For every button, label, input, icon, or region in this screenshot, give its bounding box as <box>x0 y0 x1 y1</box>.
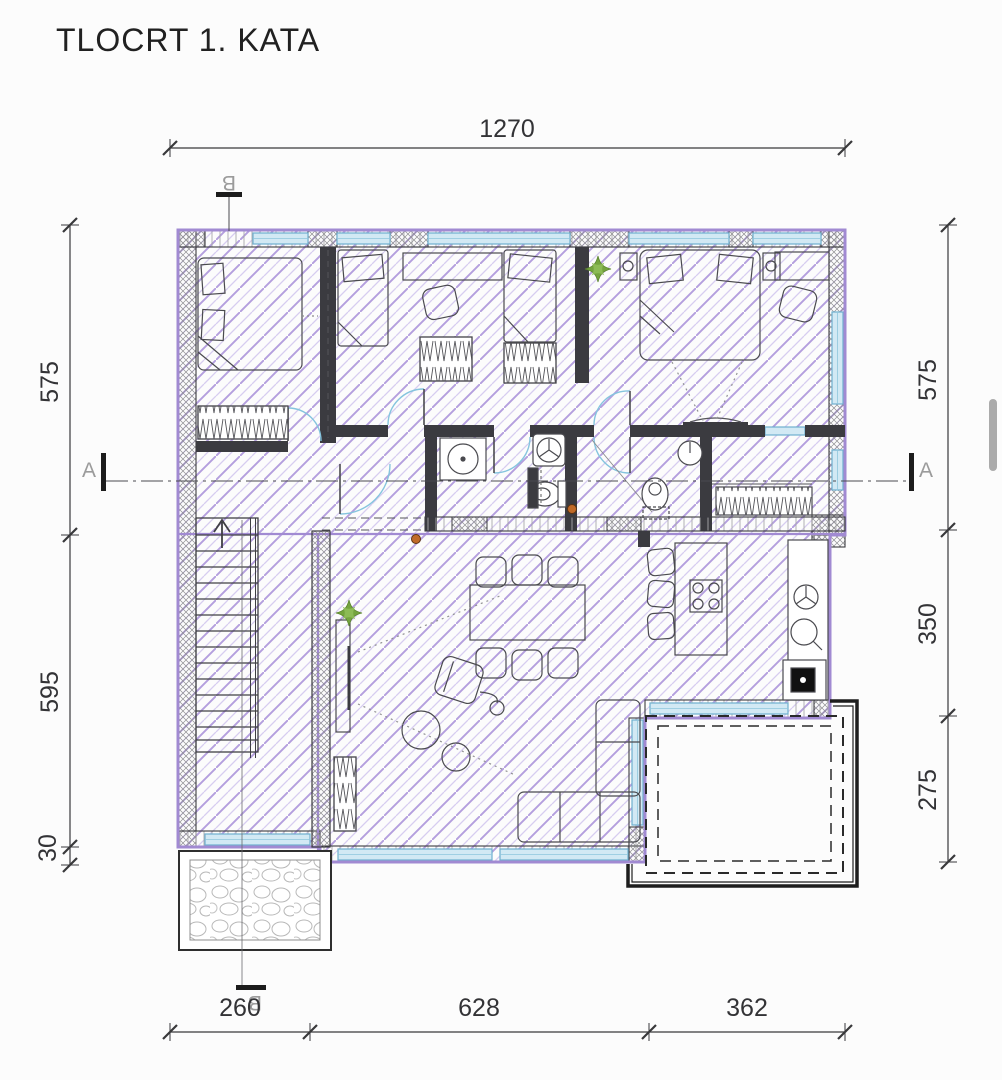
stairwell-wall <box>312 531 330 847</box>
dim-bottom-2: 628 <box>458 994 500 1022</box>
section-label-a-right: A <box>919 459 933 482</box>
accessory-dot <box>568 505 577 514</box>
shower-icon <box>440 438 486 480</box>
section-label-b-top: B <box>222 171 236 194</box>
dim-bottom-1: 260 <box>219 994 261 1022</box>
dressing-area <box>712 484 812 515</box>
floor-plan-drawing: A A B B <box>0 0 1002 1080</box>
floor-plan-page: TLOCRT 1. KATA <box>0 0 1002 1080</box>
dim-right-3: 275 <box>914 769 942 811</box>
balcony-stone <box>179 851 331 950</box>
tv-icon <box>683 422 748 429</box>
terrace <box>628 701 857 886</box>
viewer-scrollbar[interactable] <box>989 399 997 471</box>
sink-icon <box>533 434 565 466</box>
dim-top: 1270 <box>479 115 535 143</box>
dim-left-2: 595 <box>36 671 64 713</box>
dim-left-1: 575 <box>36 361 64 403</box>
dim-right-2: 350 <box>914 603 942 645</box>
dim-right-1: 575 <box>914 359 942 401</box>
accessory-dot <box>412 535 421 544</box>
dim-left-3: 30 <box>34 834 62 862</box>
section-label-a-left: A <box>82 459 96 482</box>
dim-bottom-3: 362 <box>726 994 768 1022</box>
appliance-icon <box>783 660 826 700</box>
sink-icon <box>678 441 702 465</box>
